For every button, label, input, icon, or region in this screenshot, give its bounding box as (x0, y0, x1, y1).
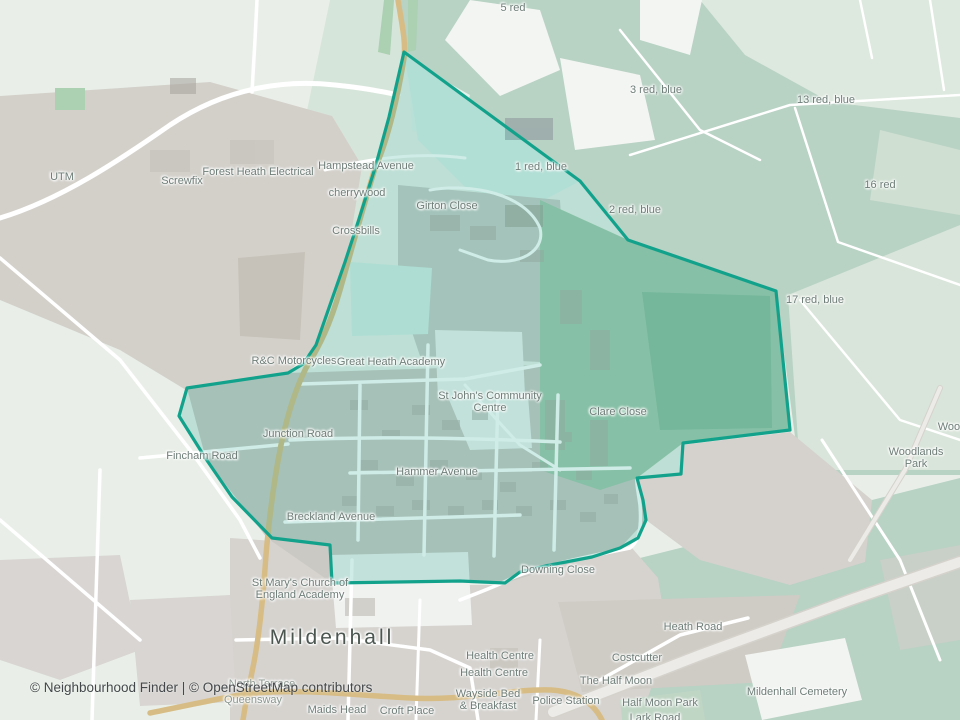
basemap-svg (0, 0, 960, 720)
map-canvas[interactable]: UTMScrewfixForest Heath ElectricalHampst… (0, 0, 960, 720)
attribution-text: © Neighbourhood Finder | © OpenStreetMap… (30, 680, 372, 695)
